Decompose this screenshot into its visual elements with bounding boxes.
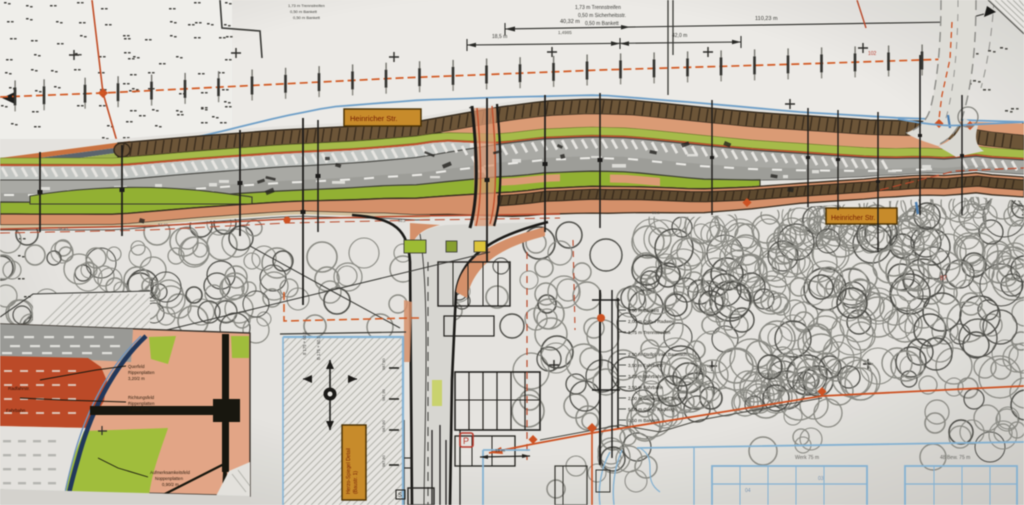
- svg-text:19 m: 19 m: [495, 448, 505, 453]
- svg-text:0,90/2 m: 0,90/2 m: [162, 482, 179, 487]
- svg-text:1,73 m Trennstreifen: 1,73 m Trennstreifen: [288, 3, 325, 8]
- svg-text:55,1: 55,1: [652, 210, 661, 215]
- svg-text:P: P: [463, 436, 469, 446]
- svg-text:B 175 + 60,5: B 175 + 60,5: [316, 335, 321, 360]
- svg-text:Richtungsfeld: Richtungsfeld: [128, 395, 155, 400]
- svg-text:Fahrbahn: Fahrbahn: [6, 408, 26, 413]
- svg-text:1,4985: 1,4985: [558, 30, 572, 35]
- svg-text:57,90: 57,90: [158, 222, 169, 227]
- svg-text:S: S: [398, 493, 402, 499]
- svg-text:102: 102: [868, 51, 877, 57]
- svg-text:Heinricher Str.: Heinricher Str.: [831, 215, 875, 222]
- svg-text:5,00 m Geh- / Radweg: 5,00 m Geh- / Radweg: [628, 407, 675, 412]
- svg-text:3,25 m Fahrbahn: 3,25 m Fahrbahn: [628, 374, 663, 379]
- svg-text:987,90: 987,90: [382, 389, 386, 401]
- svg-text:8 175 + 60,5: 8 175 + 60,5: [302, 331, 307, 355]
- svg-text:0,50 m Bankett: 0,50 m Bankett: [628, 308, 660, 313]
- svg-text:Rippenplatten: Rippenplatten: [128, 370, 155, 375]
- svg-text:0,50 m Bankett: 0,50 m Bankett: [293, 15, 321, 20]
- svg-text:0,50 m Bankett: 0,50 m Bankett: [290, 9, 318, 14]
- svg-text:56,2: 56,2: [398, 218, 407, 223]
- svg-text:0,50 m Bankett: 0,50 m Bankett: [585, 21, 619, 27]
- svg-text:1,75 m Trennstreifen: 1,75 m Trennstreifen: [628, 330, 671, 335]
- svg-text:3,20/2 m: 3,20/2 m: [128, 376, 145, 381]
- svg-text:97: 97: [940, 276, 947, 282]
- svg-text:Herzo-Spiegel Detail: Herzo-Spiegel Detail: [346, 448, 352, 494]
- svg-text:42,0 m: 42,0 m: [672, 33, 687, 39]
- svg-text:03: 03: [818, 476, 824, 482]
- svg-text:Heinricher Str.: Heinricher Str.: [350, 114, 398, 123]
- svg-text:2,00 m Gehweg inkl. Sicherh.: 2,00 m Gehweg inkl. Sicherh.: [628, 396, 688, 401]
- svg-text:987,90: 987,90: [382, 358, 386, 370]
- svg-text:48 Bew. 75 m: 48 Bew. 75 m: [940, 455, 970, 461]
- svg-text:1,73 m Trennstreifen: 1,73 m Trennstreifen: [575, 5, 621, 11]
- svg-text:Aufmerksamkeitsfeld: Aufmerksamkeitsfeld: [150, 470, 190, 475]
- svg-text:Noppenplatten: Noppenplatten: [155, 476, 184, 481]
- svg-text:04: 04: [745, 488, 751, 494]
- svg-text:40,32 m: 40,32 m: [560, 19, 580, 25]
- svg-text:0,50 m Sicherheitsstr.: 0,50 m Sicherheitsstr.: [578, 13, 626, 19]
- svg-text:3,50 m Fahrbahn: 3,50 m Fahrbahn: [628, 363, 663, 368]
- svg-text:2,50 m Stellpl. inkl. Baumsch.: 2,50 m Stellpl. inkl. Baumsch.: [628, 352, 688, 357]
- svg-text:3,50 m Fahrbahn: 3,50 m Fahrbahn: [628, 385, 663, 390]
- svg-text:Rippenplatten: Rippenplatten: [128, 401, 155, 406]
- svg-text:(Baustr. 1): (Baustr. 1): [353, 471, 359, 494]
- svg-text:Querfeld: Querfeld: [128, 364, 145, 369]
- svg-text:110,23 m: 110,23 m: [755, 16, 778, 22]
- svg-text:18,5 m: 18,5 m: [492, 34, 507, 40]
- svg-text:Radfahrstr.: Radfahrstr.: [8, 386, 30, 391]
- svg-text:2,00 m Geh- / Radweg: 2,00 m Geh- / Radweg: [628, 319, 675, 324]
- svg-text:3,20/2,5 m: 3,20/2,5 m: [128, 407, 149, 412]
- svg-text:987,90: 987,90: [382, 420, 386, 432]
- svg-text:58,45: 58,45: [58, 226, 69, 231]
- svg-text:Werk 75 m: Werk 75 m: [795, 455, 819, 461]
- svg-text:987,90: 987,90: [382, 455, 386, 467]
